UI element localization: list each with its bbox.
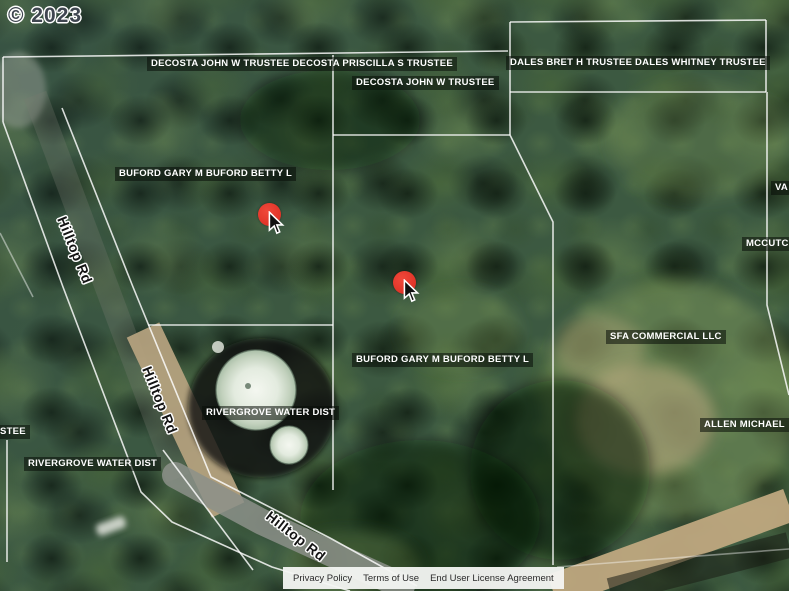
parcel-boundary-lines <box>0 20 789 591</box>
parcel-label-va-clipped: VA <box>771 181 789 195</box>
terrain-patches <box>0 52 789 591</box>
map-canvas[interactable]: DECOSTA JOHN W TRUSTEE DECOSTA PRISCILLA… <box>0 0 789 591</box>
cursor-icon <box>266 211 286 235</box>
legal-footer: Privacy Policy Terms of Use End User Lic… <box>283 567 564 589</box>
parcel-label-decosta-john: DECOSTA JOHN W TRUSTEE <box>352 76 499 90</box>
copyright-text: © 2023 <box>8 4 82 28</box>
eula-link[interactable]: End User License Agreement <box>430 573 554 584</box>
cursor-icon <box>401 279 421 303</box>
road-label-hilltop-1: Hilltop Rd <box>54 214 95 286</box>
parcel-label-buford-lower: BUFORD GARY M BUFORD BETTY L <box>352 353 533 367</box>
parcel-label-rivergrove-west: RIVERGROVE WATER DIST <box>24 457 161 471</box>
road-label-hilltop-2: Hilltop Rd <box>139 364 180 436</box>
parcel-label-dales: DALES BRET H TRUSTEE DALES WHITNEY TRUST… <box>506 56 770 70</box>
parcel-label-allen: ALLEN MICHAEL <box>700 418 789 432</box>
water-tanks <box>212 341 308 464</box>
parcel-label-decosta-both: DECOSTA JOHN W TRUSTEE DECOSTA PRISCILLA… <box>147 57 457 71</box>
parcel-label-buford-upper: BUFORD GARY M BUFORD BETTY L <box>115 167 296 181</box>
parcel-label-trustee-clipped: STEE <box>0 425 30 439</box>
privacy-policy-link[interactable]: Privacy Policy <box>293 573 352 584</box>
parcel-label-rivergrove-tank: RIVERGROVE WATER DIST <box>202 406 339 420</box>
parcel-label-sfa: SFA COMMERCIAL LLC <box>606 330 726 344</box>
terms-of-use-link[interactable]: Terms of Use <box>363 573 419 584</box>
road-label-hilltop-3: Hilltop Rd <box>263 508 329 564</box>
parcel-label-mccutcheon-clipped: MCCUTC <box>742 237 789 251</box>
